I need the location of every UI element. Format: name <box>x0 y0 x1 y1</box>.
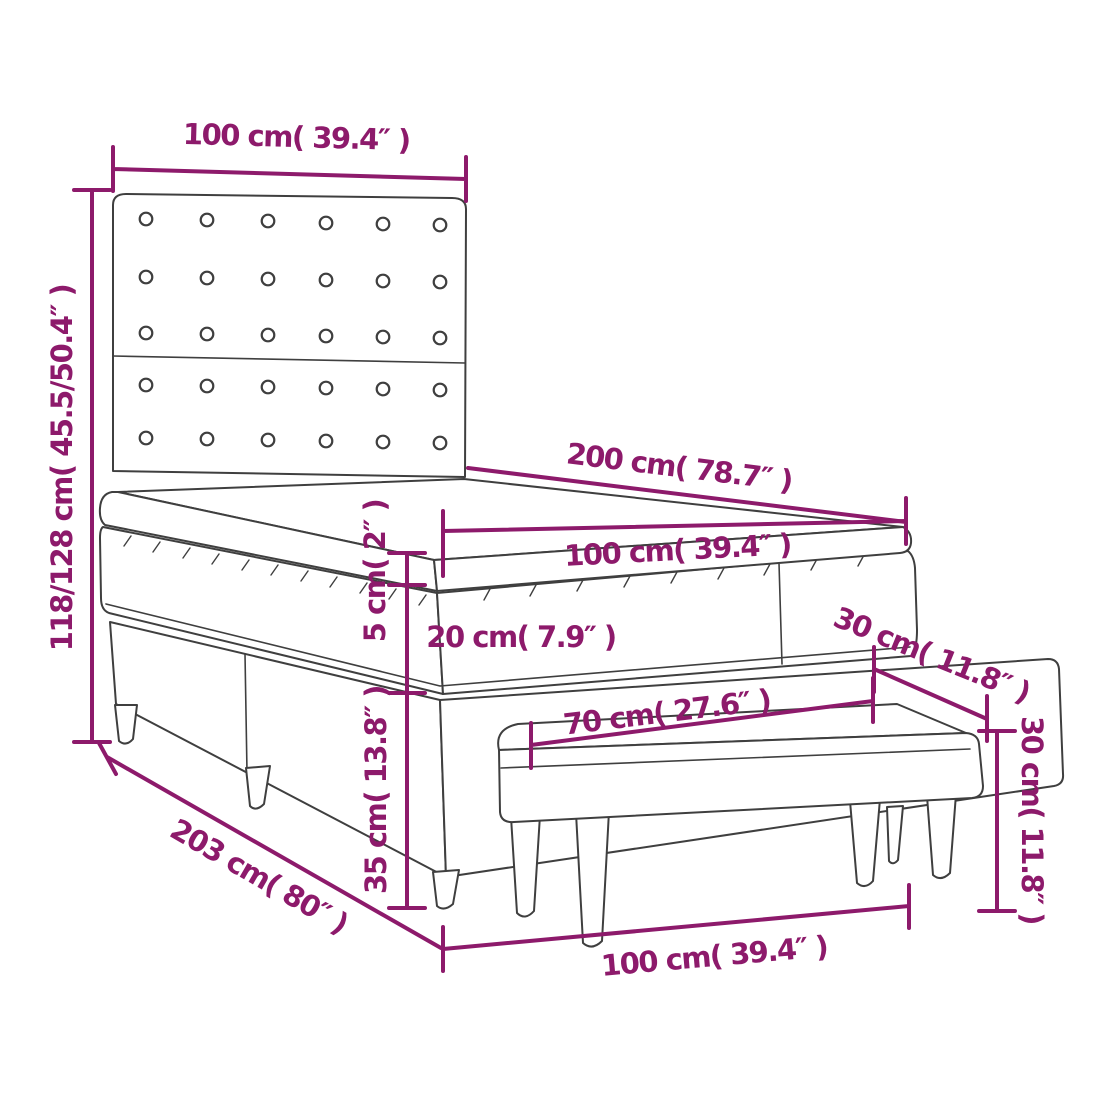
bed-leg <box>246 766 270 809</box>
topper-thickness-label: 5 cm( 2″ ) <box>358 500 392 643</box>
mattress-length-label: 200 cm( 78.7″ ) <box>565 436 794 497</box>
bench-leg <box>927 794 956 878</box>
dim-line-total-height <box>74 190 110 742</box>
total-height-label: 118/128 cm( 45.5/50.4″ ) <box>45 285 79 652</box>
base-length-label: 203 cm( 80″ ) <box>165 812 354 941</box>
mattress-thickness-label: 20 cm( 7.9″ ) <box>426 620 615 654</box>
bench-height-label: 30 cm( 11.8″ ) <box>1015 716 1049 924</box>
bed-dimension-diagram: 100 cm( 39.4″ ) 118/128 cm( 45.5/50.4″ )… <box>0 0 1100 1100</box>
bench-leg <box>576 811 609 947</box>
base-height-label: 35 cm( 13.8″ ) <box>359 686 393 894</box>
bench-seat-front <box>499 733 983 822</box>
headboard-panel <box>113 194 466 477</box>
diagram-canvas: 100 cm( 39.4″ ) 118/128 cm( 45.5/50.4″ )… <box>0 0 1100 1100</box>
bench-leg <box>850 799 880 886</box>
bench-leg <box>887 806 903 863</box>
dim-line-headboard-width <box>113 147 466 201</box>
bed-leg <box>115 705 137 744</box>
bed-leg <box>433 870 459 909</box>
base-width-label: 100 cm( 39.4″ ) <box>600 929 829 983</box>
headboard-width-label: 100 cm( 39.4″ ) <box>182 117 410 157</box>
headboard <box>113 194 466 477</box>
